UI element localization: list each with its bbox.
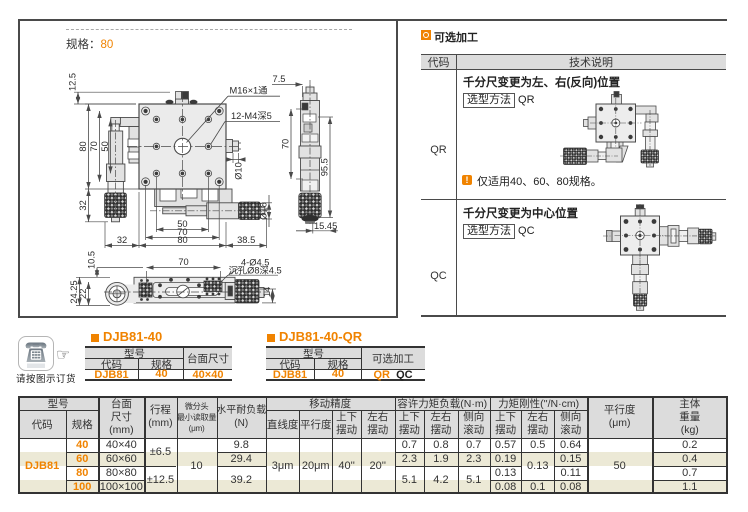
svg-text:12-M4深5: 12-M4深5 [231,111,272,121]
svg-text:12.5: 12.5 [68,73,78,91]
svg-text:Ø10: Ø10 [234,162,244,180]
svg-text:80: 80 [177,235,187,245]
svg-text:32: 32 [117,235,127,245]
svg-text:80: 80 [78,141,88,151]
svg-text:15.45: 15.45 [314,221,337,231]
svg-text:70: 70 [178,257,188,267]
svg-text:10.5: 10.5 [87,251,97,269]
svg-text:95.5: 95.5 [320,158,330,176]
svg-text:32: 32 [78,200,88,210]
svg-text:50: 50 [100,141,110,151]
svg-text:70: 70 [89,141,99,151]
svg-text:70: 70 [281,139,291,149]
svg-text:沉孔Ø8深4.5: 沉孔Ø8深4.5 [229,265,282,275]
svg-text:38.5: 38.5 [237,235,255,245]
svg-text:Ø18: Ø18 [259,202,269,220]
svg-text:14: 14 [262,287,272,297]
svg-text:22: 22 [78,289,88,299]
svg-text:M16×1通: M16×1通 [230,86,268,96]
svg-text:7.5: 7.5 [273,74,286,84]
